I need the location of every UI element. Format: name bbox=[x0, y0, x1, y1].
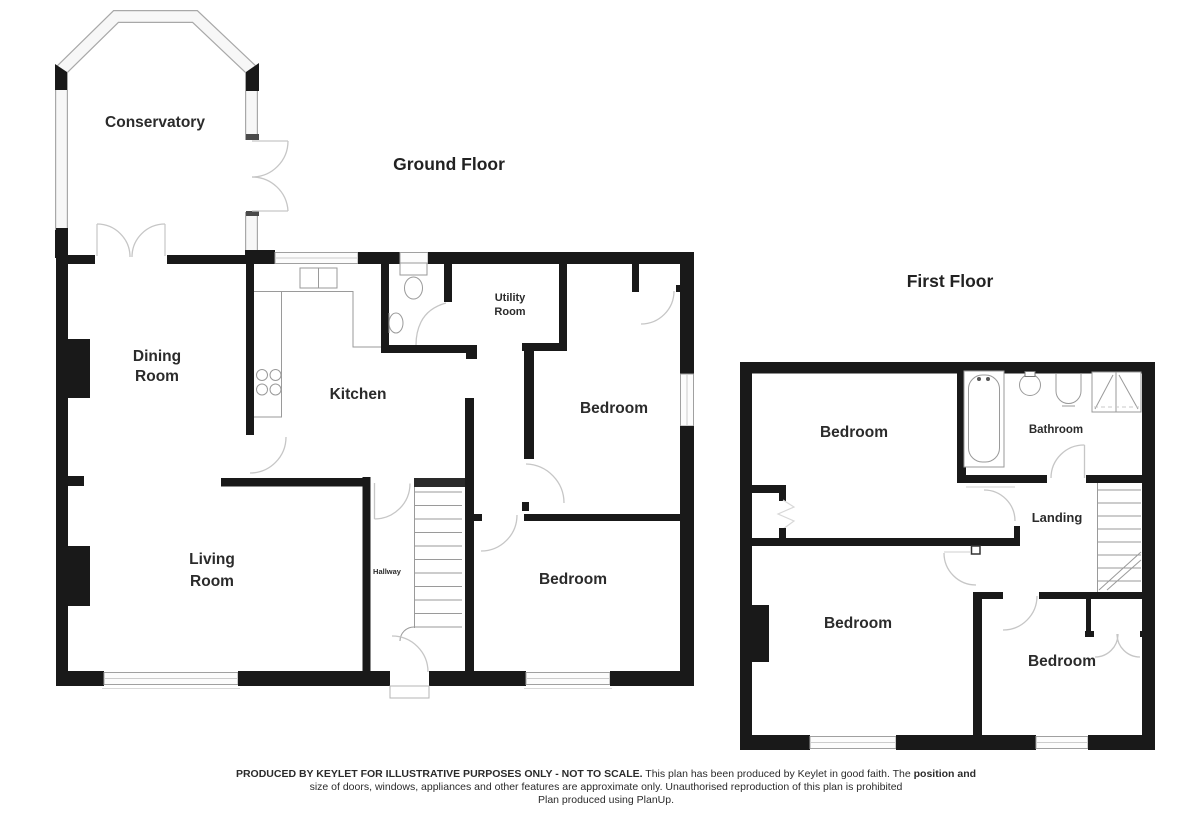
svg-text:Conservatory: Conservatory bbox=[105, 114, 205, 131]
svg-text:Living: Living bbox=[189, 551, 235, 568]
svg-text:Plan produced using PlanUp.: Plan produced using PlanUp. bbox=[538, 794, 674, 806]
svg-text:Utility: Utility bbox=[495, 292, 526, 304]
svg-text:Room: Room bbox=[494, 306, 525, 318]
svg-text:Bedroom: Bedroom bbox=[580, 400, 648, 417]
svg-text:Bedroom: Bedroom bbox=[824, 615, 892, 632]
svg-text:First Floor: First Floor bbox=[907, 271, 994, 291]
svg-text:Dining: Dining bbox=[133, 348, 181, 365]
svg-text:Hallway: Hallway bbox=[373, 567, 402, 576]
svg-text:Bedroom: Bedroom bbox=[820, 424, 888, 441]
svg-text:Bedroom: Bedroom bbox=[1028, 653, 1096, 670]
svg-text:Landing: Landing bbox=[1032, 510, 1083, 525]
svg-text:Room: Room bbox=[135, 368, 179, 385]
svg-text:Bedroom: Bedroom bbox=[539, 571, 607, 588]
svg-text:Ground Floor: Ground Floor bbox=[393, 154, 505, 174]
svg-text:PRODUCED BY KEYLET FOR ILLUSTR: PRODUCED BY KEYLET FOR ILLUSTRATIVE PURP… bbox=[236, 768, 976, 780]
svg-text:size of doors, windows, applia: size of doors, windows, appliances and o… bbox=[310, 781, 903, 793]
svg-text:Room: Room bbox=[190, 573, 234, 590]
svg-text:Kitchen: Kitchen bbox=[330, 386, 387, 403]
svg-text:Bathroom: Bathroom bbox=[1029, 424, 1083, 436]
